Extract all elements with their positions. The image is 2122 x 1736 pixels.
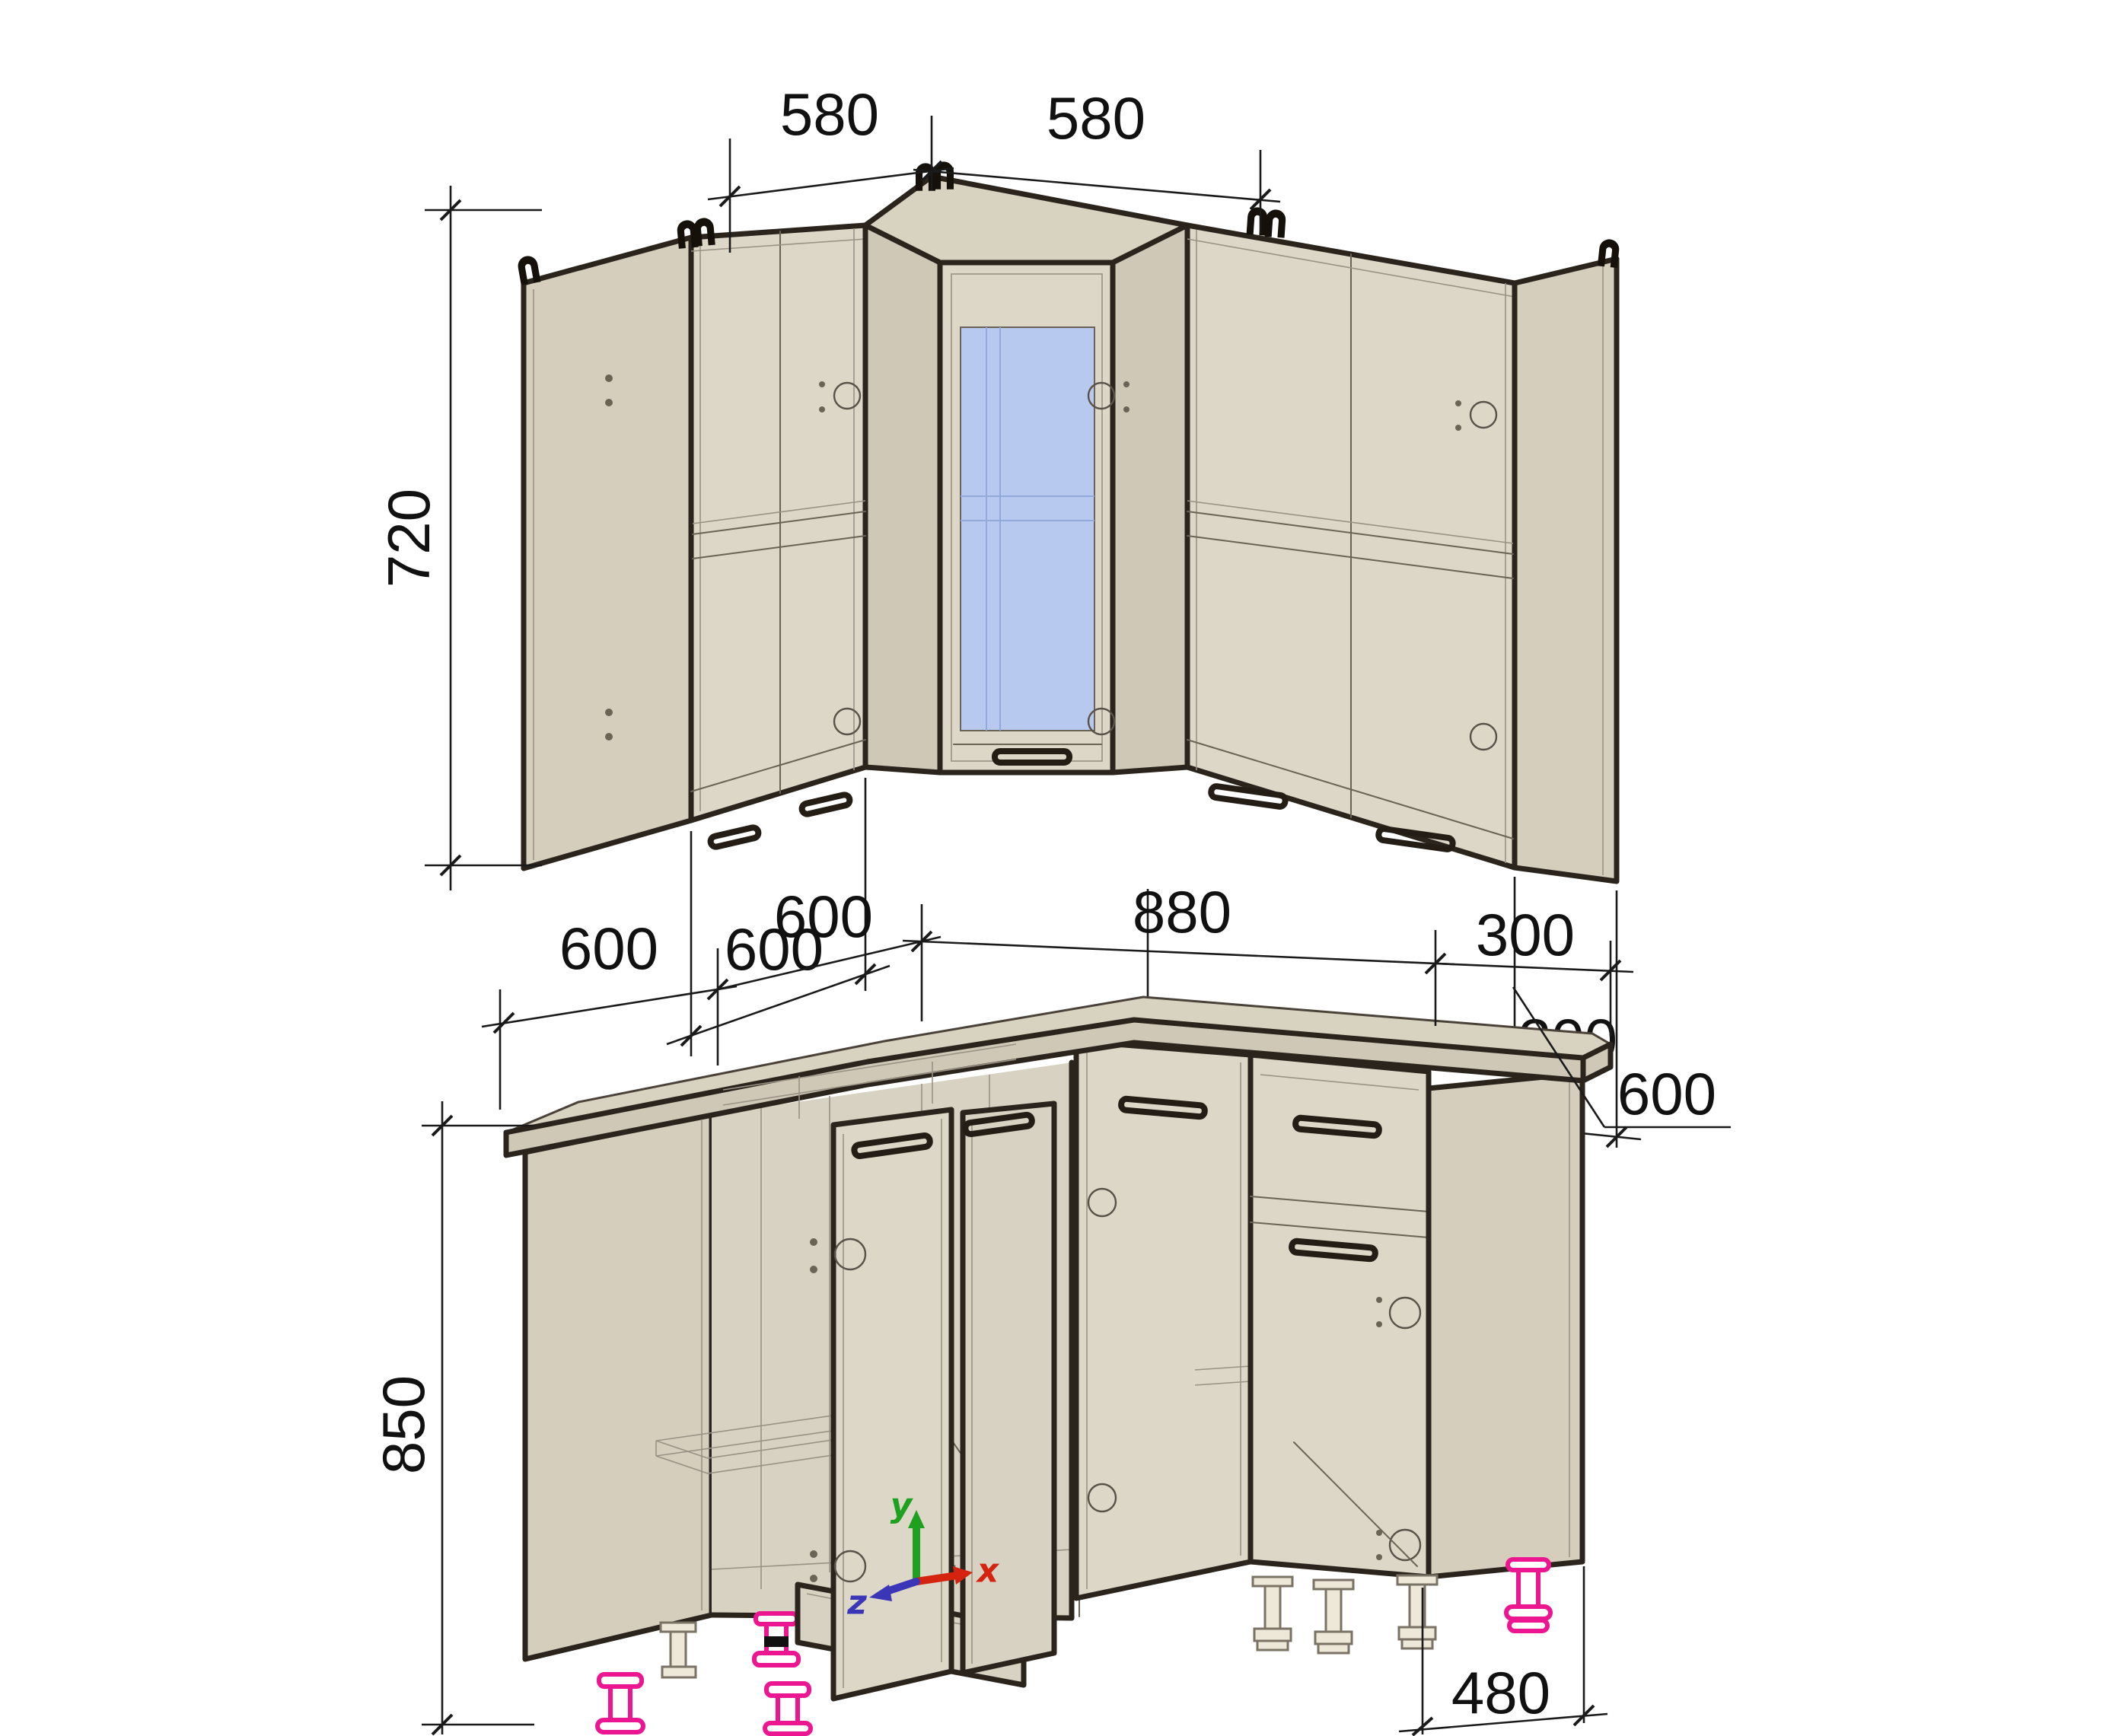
adjustable-leg — [765, 1683, 811, 1734]
dim-wall-height: 720 — [375, 186, 542, 890]
axis-y-label: y — [891, 1486, 914, 1525]
adjustable-leg — [597, 1674, 643, 1732]
dim-label: 600 — [1617, 1060, 1716, 1127]
base-left-side-panel — [525, 1114, 712, 1659]
axis-x-label: x — [976, 1552, 1000, 1591]
glass-pane — [961, 327, 1094, 731]
left-side-panel — [524, 237, 691, 868]
axis-z-label: z — [846, 1584, 867, 1623]
dim-label: 580 — [1047, 84, 1145, 151]
wall-cabinets-view: 580 580 720 600 600 300 — [375, 81, 1641, 1148]
dim-label: 850 — [370, 1375, 437, 1474]
dim-label: 720 — [375, 489, 442, 588]
dim-label: 600 — [559, 915, 658, 982]
dim-label: 880 — [1133, 878, 1231, 945]
dim-base-plinth: 480 — [1399, 1566, 1607, 1735]
base-legs-hardware — [1253, 1575, 1437, 1653]
leg-bolt — [764, 1636, 789, 1647]
end-wall-cabinet-panel — [1515, 259, 1617, 881]
dim-label: 300 — [1476, 901, 1575, 968]
dim-label: 480 — [1451, 1659, 1550, 1726]
dim-base-height: 850 — [370, 1101, 534, 1734]
base-end-panel — [1429, 1073, 1582, 1577]
base-cabinets-view: y x z 600 600 880 300 600 — [370, 878, 1731, 1735]
adjustable-leg — [1506, 1559, 1550, 1631]
corner-left-chamfer — [865, 225, 940, 772]
corner-right-chamfer — [1113, 225, 1187, 772]
base-right-wing-front — [1076, 1041, 1251, 1598]
dim-label: 580 — [780, 81, 879, 148]
dim-label: 600 — [774, 883, 873, 950]
corner-kitchen-assembly-drawing: 580 580 720 600 600 300 — [0, 0, 2122, 1736]
technical-drawing-page: 580 580 720 600 600 300 — [0, 0, 2122, 1736]
